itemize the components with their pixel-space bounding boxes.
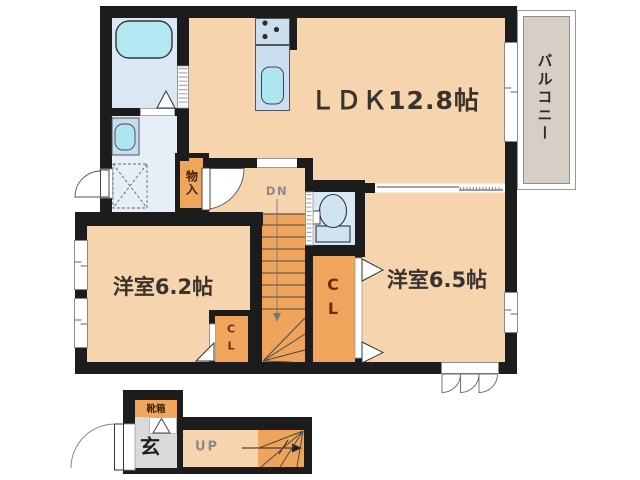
label-entrance: 玄 [140, 431, 160, 460]
wall-stairs-left [250, 212, 262, 374]
kitchen-sink-counter [255, 45, 290, 111]
bathroom-floor [112, 18, 177, 108]
label-closet-large: CL [325, 273, 341, 321]
label-balcony: バルコニー [535, 53, 556, 143]
window-room65-right [504, 292, 518, 333]
wall-closet-right-cap-bottom [355, 358, 362, 374]
washroom-floor [112, 116, 177, 212]
label-shoebox: 靴箱 [146, 401, 165, 415]
doorway-ldk-hall [257, 158, 297, 168]
floor-plan: ＬＤＫ12.8帖 洋室6.2帖 洋室6.5帖 バルコニー 物入 CL CL DN… [0, 0, 640, 480]
window-room62-left-2 [74, 298, 88, 348]
window-room62-left-1 [74, 240, 88, 290]
wall-toilet-closet-divider [305, 245, 365, 256]
label-room-6_5: 洋室6.5帖 [387, 264, 487, 294]
window-arcs-icon [442, 374, 498, 393]
wall-sliding-stub [360, 183, 375, 193]
doorway-bath [140, 108, 175, 116]
stairs-down-floor [262, 213, 305, 362]
toilet-floor [313, 192, 355, 245]
wall-kitchen-stub [290, 18, 297, 50]
window-room65-bottom [441, 362, 499, 374]
kitchen-stove-counter [255, 18, 290, 45]
label-closet-small: CL [226, 322, 237, 355]
label-stairs-down: DN [266, 184, 288, 198]
wall-closet-right-cap-top [355, 256, 362, 260]
wall-top [100, 6, 517, 18]
label-ldk: ＬＤＫ12.8帖 [310, 81, 480, 117]
window-balcony [504, 42, 518, 142]
stairs-up-floor [258, 430, 304, 467]
label-room-6_2: 洋室6.2帖 [113, 271, 213, 301]
wall-washroom-bottom [75, 212, 263, 226]
wall-left-upper [100, 6, 112, 224]
wall-hall-top [203, 158, 257, 168]
wall-toilet-top [305, 180, 365, 192]
wall-bath-right [177, 18, 189, 161]
label-stairs-up: UP [195, 440, 219, 455]
wall-left-lower [75, 212, 87, 374]
label-storage: 物入 [184, 170, 201, 196]
